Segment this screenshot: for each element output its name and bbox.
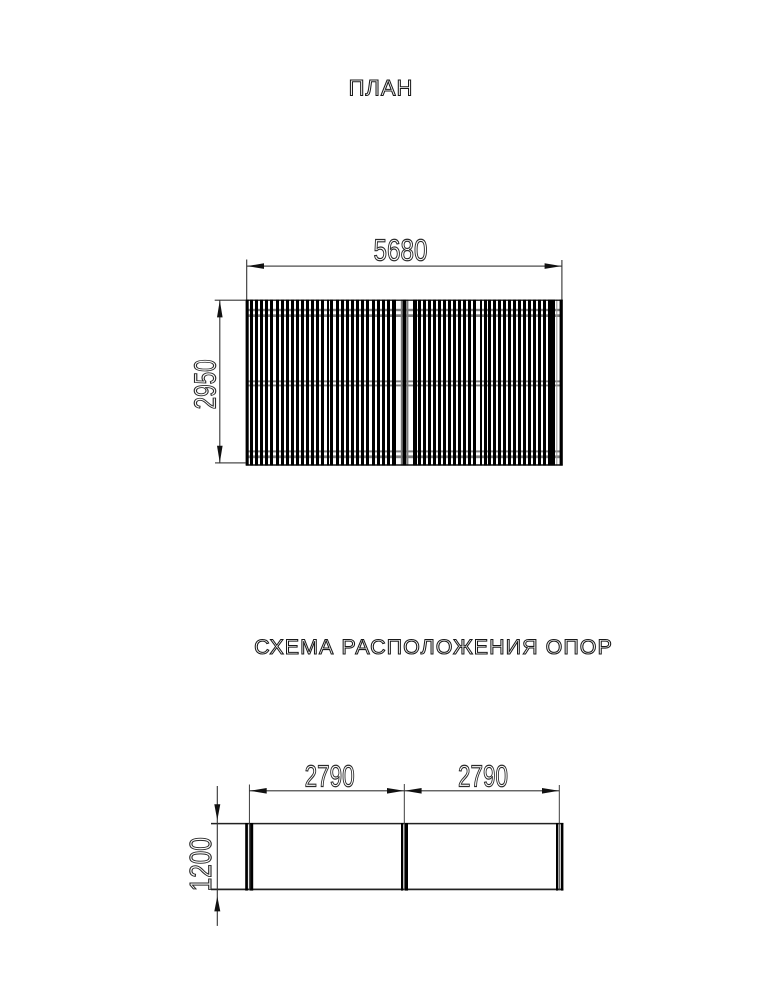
svg-text:ПЛАН: ПЛАН (349, 76, 414, 101)
svg-text:2950: 2950 (188, 359, 222, 409)
svg-text:СХЕМА РАСПОЛОЖЕНИЯ ОПОР: СХЕМА РАСПОЛОЖЕНИЯ ОПОР (254, 635, 613, 659)
svg-text:5680: 5680 (374, 234, 428, 268)
svg-text:2790: 2790 (458, 759, 508, 793)
svg-text:1200: 1200 (184, 837, 218, 891)
svg-text:2790: 2790 (305, 759, 355, 793)
